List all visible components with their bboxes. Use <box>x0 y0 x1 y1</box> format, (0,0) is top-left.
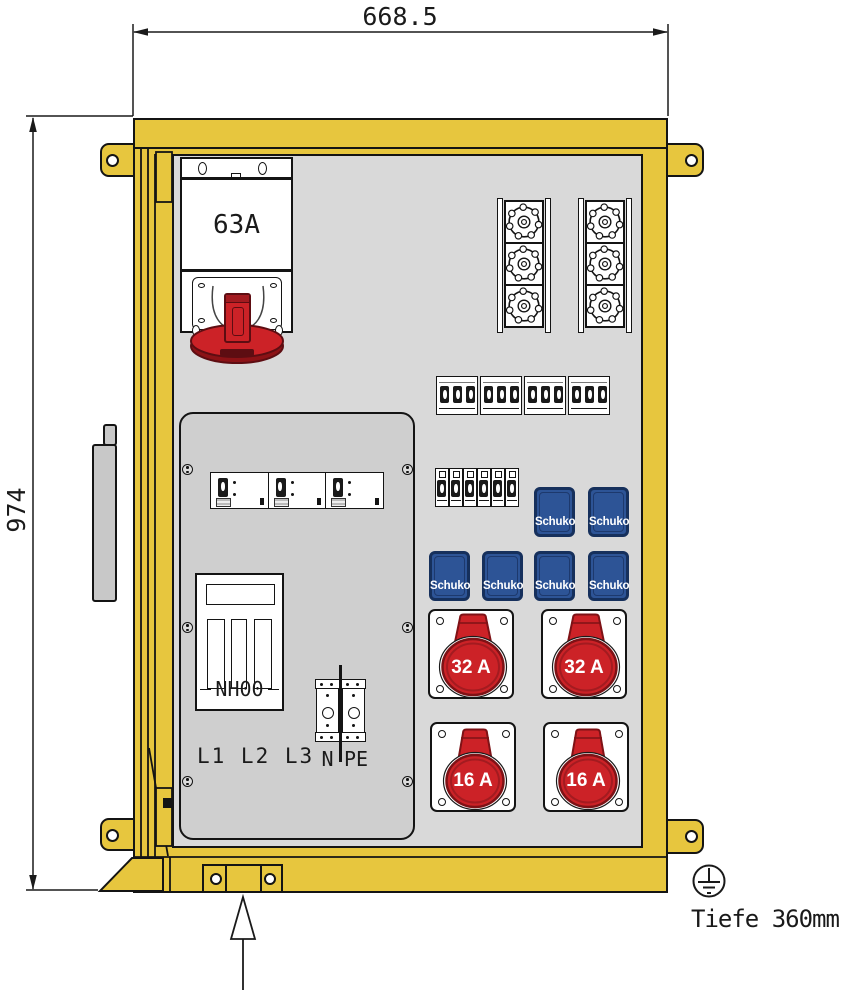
din-clip <box>331 498 346 507</box>
din-clip <box>274 498 289 507</box>
panel-breaker-strip <box>210 472 384 509</box>
dim-arrow-left <box>133 28 148 36</box>
n-terminal-block <box>316 679 339 741</box>
bracket-hole-icon <box>210 873 222 885</box>
schuko-socket: Schuko <box>588 551 629 601</box>
breaker-single <box>505 468 519 507</box>
screw-icon <box>258 162 267 175</box>
breaker-toggle <box>479 480 488 497</box>
main-inlet-63a-topstrip <box>180 157 293 179</box>
breaker-toggle <box>585 386 594 403</box>
mounting-lug-bottom-left <box>100 818 135 851</box>
cee-socket-body-icon <box>543 611 629 701</box>
breaker-3pole-group <box>524 376 566 415</box>
breaker-toggle <box>572 386 581 403</box>
schuko-socket: Schuko <box>534 487 575 537</box>
fuse-cap-icon <box>587 202 623 242</box>
fuse-rail <box>578 198 584 333</box>
mounting-lug-top-left <box>100 143 135 177</box>
height-dimension-label: 974 <box>2 479 32 541</box>
breaker-toggle <box>437 480 446 497</box>
mounting-hole-icon <box>106 829 119 842</box>
schuko-label: Schuko <box>589 580 628 592</box>
breaker-toggle <box>493 480 502 497</box>
mounting-hole-icon <box>106 154 119 167</box>
earth-symbol-icon <box>694 866 725 897</box>
panel-screw-icon <box>182 776 193 787</box>
width-dimension-label: 668.5 <box>340 2 460 31</box>
breaker-toggle <box>497 386 506 403</box>
schuko-label: Schuko <box>589 516 628 528</box>
panel-screw-icon <box>182 464 193 475</box>
breaker-3pole-group <box>436 376 478 415</box>
door-latch-step <box>103 424 117 446</box>
breaker-toggle <box>440 386 449 403</box>
panel-screw-icon <box>402 464 413 475</box>
inlet-rating-label: 63A <box>213 210 260 240</box>
panel-screw-icon <box>402 776 413 787</box>
dim-arrow-down <box>29 875 37 890</box>
cee-rating-label: 32 A <box>430 657 512 679</box>
mounting-lug-bottom-right <box>666 819 704 854</box>
breaker-toggle <box>528 386 537 403</box>
breaker-toggle <box>333 478 343 497</box>
fuse-cap-icon <box>506 202 542 242</box>
schuko-label: Schuko <box>483 580 522 592</box>
depth-label: Tiefe 360mm <box>691 905 839 933</box>
fuse-holder <box>504 284 544 328</box>
mounting-lug-top-right <box>666 143 704 177</box>
schuko-label: Schuko <box>535 516 574 528</box>
fuse-cap-icon <box>506 286 542 326</box>
mounting-hole-icon <box>685 154 698 167</box>
breaker-toggle <box>510 386 519 403</box>
breaker-toggle <box>276 478 286 497</box>
fuse-holder <box>585 284 625 328</box>
cee-socket-body-icon <box>430 611 516 701</box>
schuko-label: Schuko <box>535 580 574 592</box>
cee-rating-label: 16 A <box>545 770 627 792</box>
breaker-3pole-group <box>568 376 610 415</box>
breaker-single <box>463 468 477 507</box>
phase-labels: L1 L2 L3 <box>197 744 314 768</box>
schuko-socket: Schuko <box>534 551 575 601</box>
dim-arrow-right <box>653 28 668 36</box>
inlet-cap-hinge <box>224 293 251 343</box>
main-inlet-63a-body: 63A <box>180 178 293 271</box>
din-clip <box>216 498 231 507</box>
cee-socket-body-icon <box>432 724 518 814</box>
cee-socket-16a-right: 16 A <box>543 722 629 812</box>
schuko-label: Schuko <box>430 580 469 592</box>
breaker-toggle <box>507 480 516 497</box>
schuko-socket: Schuko <box>588 487 629 537</box>
breaker-single <box>435 468 449 507</box>
panel-breaker-cell <box>326 473 383 508</box>
breaker-toggle <box>554 386 563 403</box>
cee-rating-label: 32 A <box>543 657 625 679</box>
panel-breaker-cell <box>269 473 327 508</box>
breaker-toggle <box>484 386 493 403</box>
nh00-label: NH00 <box>215 677 263 701</box>
terminal-ring <box>348 707 360 719</box>
breaker-toggle <box>598 386 607 403</box>
breaker-toggle <box>218 478 228 497</box>
bracket-hole-icon <box>264 873 276 885</box>
fuse-holder <box>585 242 625 286</box>
nh00-fuse-holder: NH00 <box>195 573 284 711</box>
terminal-mark <box>317 498 321 505</box>
schuko-socket: Schuko <box>429 551 470 601</box>
cee-socket-32a-left: 32 A <box>428 609 514 699</box>
dim-arrow-up <box>29 117 37 132</box>
panel-breaker-cell <box>211 473 269 508</box>
door-latch-handle <box>92 444 117 602</box>
enclosure-roof <box>133 118 668 149</box>
screw-icon <box>198 162 207 175</box>
pe-label: PE <box>342 747 370 771</box>
cee-rating-label: 16 A <box>432 770 514 792</box>
breaker-single <box>449 468 463 507</box>
cee-socket-body-icon <box>545 724 631 814</box>
breaker-single <box>491 468 505 507</box>
mounting-bracket <box>202 864 283 893</box>
cee-socket-16a-left: 16 A <box>430 722 516 812</box>
mounting-arrow-icon <box>231 897 255 990</box>
terminal-mark <box>260 498 264 505</box>
breaker-3pole-group <box>480 376 522 415</box>
panel-screw-icon <box>182 622 193 633</box>
fuse-holder <box>585 200 625 244</box>
panel-screw-icon <box>402 622 413 633</box>
breaker-toggle <box>466 386 475 403</box>
fuse-cap-icon <box>506 244 542 284</box>
pe-terminal-block <box>342 679 365 741</box>
mounting-hole-icon <box>685 830 698 843</box>
breaker-single <box>477 468 491 507</box>
fuse-holder <box>504 200 544 244</box>
technical-drawing-canvas: 63A <box>0 0 855 1000</box>
schuko-socket: Schuko <box>482 551 523 601</box>
terminal-mark <box>375 498 379 505</box>
neutral-label: N <box>316 747 339 771</box>
breaker-toggle <box>541 386 550 403</box>
breaker-toggle <box>465 480 474 497</box>
cee-socket-32a-right: 32 A <box>541 609 627 699</box>
width-dimension <box>133 24 668 116</box>
fuse-cap-icon <box>587 244 623 284</box>
fuse-rail <box>497 198 503 333</box>
terminal-ring <box>322 707 334 719</box>
breaker-toggle <box>451 480 460 497</box>
fuse-holder <box>504 242 544 286</box>
fuse-rail <box>545 198 551 333</box>
nh00-top-bar <box>206 584 275 605</box>
fuse-cap-icon <box>587 286 623 326</box>
breaker-toggle <box>453 386 462 403</box>
fuse-rail <box>626 198 632 333</box>
